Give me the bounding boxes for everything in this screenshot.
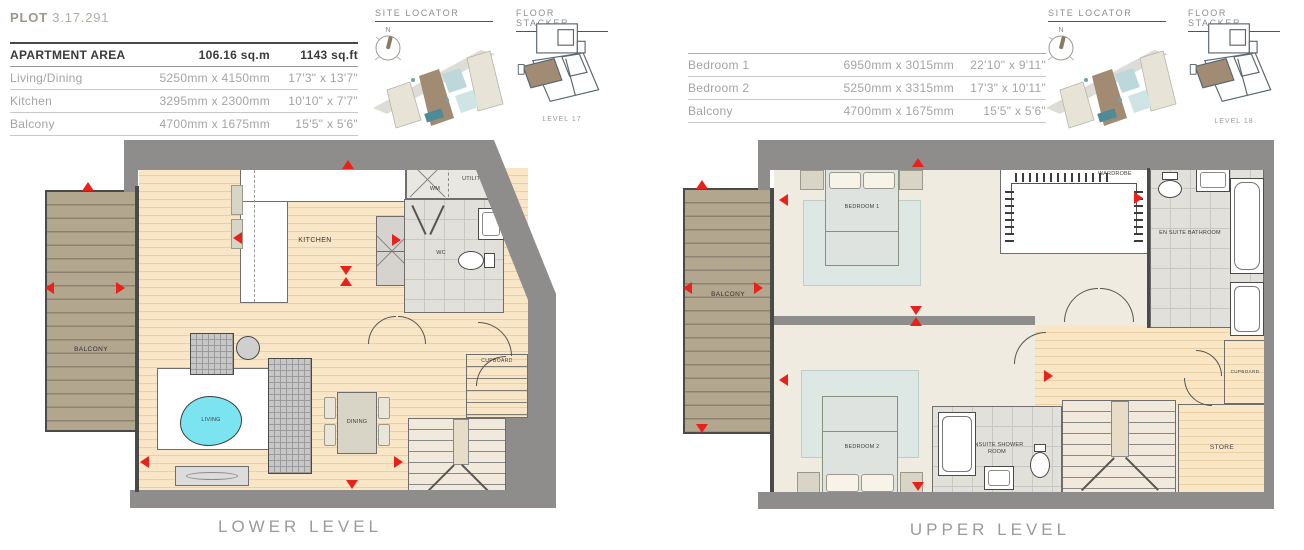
window-marker-icon bbox=[779, 374, 788, 386]
door-marker-icon bbox=[1044, 370, 1053, 382]
floor-stacker-diagram bbox=[1182, 20, 1277, 112]
plot-title: PLOT 3.17.291 bbox=[10, 10, 109, 25]
upper-stairs bbox=[1062, 400, 1176, 494]
window-wall bbox=[770, 188, 774, 492]
floorplan-page: PLOT 3.17.291 APARTMENT AREA 106.16 sq.m… bbox=[0, 0, 1304, 550]
window-marker-icon bbox=[910, 306, 922, 315]
wall bbox=[758, 492, 1274, 509]
counter-dashline bbox=[254, 170, 255, 302]
pillow-icon bbox=[826, 474, 859, 492]
room-name-cell: Kitchen bbox=[10, 90, 128, 113]
metric-cell: 3295mm x 2300mm bbox=[128, 90, 270, 113]
room-label: WM bbox=[425, 186, 445, 193]
tv-unit-icon bbox=[175, 466, 249, 486]
toilet-cistern bbox=[1034, 444, 1046, 452]
site-locator-map: N bbox=[363, 18, 508, 130]
chair-icon bbox=[324, 424, 336, 446]
partition-wall bbox=[1147, 168, 1150, 328]
wall bbox=[1264, 140, 1274, 508]
imperial-cell: 15'5" x 5'6" bbox=[270, 113, 358, 136]
chair-icon bbox=[378, 424, 390, 446]
room-label: DINING bbox=[337, 419, 377, 426]
header-name-cell: APARTMENT AREA bbox=[10, 43, 128, 67]
room-name-cell: Balcony bbox=[688, 100, 806, 123]
room-name-cell: Bedroom 1 bbox=[688, 54, 806, 77]
toilet-cistern bbox=[1162, 172, 1178, 180]
window-marker-icon bbox=[394, 456, 403, 468]
window-marker-icon bbox=[912, 158, 924, 167]
lower-plan-title: LOWER LEVEL bbox=[150, 517, 450, 537]
room-label: BEDROOM 1 bbox=[822, 204, 902, 211]
upper-balcony bbox=[683, 188, 773, 434]
wall bbox=[124, 140, 138, 192]
chair-icon bbox=[378, 397, 390, 419]
window-marker-icon bbox=[912, 482, 924, 491]
wall bbox=[528, 293, 556, 492]
room-label: WARDROBE bbox=[1098, 171, 1148, 178]
bathtub-icon bbox=[1230, 178, 1264, 274]
door-marker-icon bbox=[340, 277, 352, 286]
kitchen-appliance bbox=[231, 185, 243, 215]
svg-text:N: N bbox=[385, 27, 390, 34]
room-name-cell: Bedroom 2 bbox=[688, 77, 806, 100]
window-marker-icon bbox=[82, 182, 94, 191]
imperial-cell: 22'10" x 9'11" bbox=[954, 54, 1046, 77]
window-marker-icon bbox=[45, 282, 54, 294]
pillow-icon bbox=[861, 474, 894, 492]
room-name-cell: Living/Dining bbox=[10, 67, 128, 90]
wall bbox=[773, 316, 1035, 325]
apartment-area-table: APARTMENT AREA 106.16 sq.m 1143 sq.ft Li… bbox=[10, 42, 358, 136]
window-marker-icon bbox=[346, 480, 358, 489]
plot-number: 3.17.291 bbox=[52, 10, 109, 25]
wall bbox=[758, 140, 770, 190]
plot-label: PLOT bbox=[10, 10, 48, 25]
wall bbox=[758, 140, 1272, 170]
shower-icon bbox=[938, 412, 976, 476]
chair-icon bbox=[324, 397, 336, 419]
window-marker-icon bbox=[754, 282, 763, 294]
sofa-icon bbox=[190, 333, 234, 375]
window-marker-icon bbox=[116, 282, 125, 294]
compass-icon: N bbox=[375, 27, 401, 60]
header-metric-cell: 106.16 sq.m bbox=[128, 43, 270, 67]
sofa-icon bbox=[268, 358, 312, 474]
wall bbox=[506, 418, 528, 492]
wardrobe-room bbox=[1000, 168, 1148, 254]
imperial-cell: 15'5" x 5'6" bbox=[954, 100, 1046, 123]
table-row: Balcony 4700mm x 1675mm 15'5" x 5'6" bbox=[688, 100, 1046, 123]
toilet-icon bbox=[1030, 452, 1050, 478]
svg-text:N: N bbox=[1058, 27, 1063, 34]
pillow-icon bbox=[863, 172, 895, 189]
table-row: Bedroom 2 5250mm x 3315mm 17'3" x 10'11" bbox=[688, 77, 1046, 100]
lower-balcony bbox=[45, 190, 137, 432]
compass-icon: N bbox=[1048, 27, 1074, 60]
bedside-table-icon bbox=[800, 170, 824, 190]
metric-cell: 4700mm x 1675mm bbox=[806, 100, 954, 123]
metric-cell: 5250mm x 3315mm bbox=[806, 77, 954, 100]
side-table-icon bbox=[236, 336, 260, 360]
table-row: Balcony 4700mm x 1675mm 15'5" x 5'6" bbox=[10, 113, 358, 136]
room-label: BALCONY bbox=[49, 346, 133, 354]
toilet-icon bbox=[1158, 180, 1182, 198]
shower-icon bbox=[1230, 282, 1264, 336]
imperial-cell: 17'3" x 13'7" bbox=[270, 67, 358, 90]
hangers-icon bbox=[1005, 191, 1014, 243]
wall bbox=[130, 490, 556, 508]
window-marker-icon bbox=[342, 160, 354, 169]
room-label: EN SUITE BATHROOM bbox=[1154, 230, 1226, 237]
lower-stairs bbox=[408, 418, 506, 492]
window-marker-icon bbox=[683, 282, 692, 294]
bedroom-area-table: Bedroom 1 6950mm x 3015mm 22'10" x 9'11"… bbox=[688, 53, 1046, 123]
bedside-table-icon bbox=[899, 170, 923, 190]
sink-icon bbox=[984, 466, 1014, 490]
window-marker-icon bbox=[779, 194, 788, 206]
bedside-table-icon bbox=[797, 472, 820, 494]
window-marker-icon bbox=[696, 424, 708, 433]
site-locator-map: N bbox=[1036, 18, 1181, 130]
metric-cell: 4700mm x 1675mm bbox=[128, 113, 270, 136]
window-wall bbox=[135, 186, 139, 492]
room-label: BEDROOM 2 bbox=[822, 444, 902, 451]
room-name-cell: Balcony bbox=[10, 113, 128, 136]
room-label: LIVING bbox=[183, 417, 239, 424]
door-marker-icon bbox=[1134, 192, 1143, 204]
table-row: Bedroom 1 6950mm x 3015mm 22'10" x 9'11" bbox=[688, 54, 1046, 77]
table-header-row: APARTMENT AREA 106.16 sq.m 1143 sq.ft bbox=[10, 43, 358, 67]
sink-icon bbox=[1196, 168, 1230, 192]
window-marker-icon bbox=[910, 317, 922, 326]
toilet-icon bbox=[458, 251, 484, 270]
room-label: CUPBOARD bbox=[1222, 369, 1268, 375]
window-marker-icon bbox=[696, 180, 708, 189]
pillow-icon bbox=[829, 172, 861, 189]
level-caption: LEVEL 18 bbox=[1188, 118, 1280, 125]
table-row: Kitchen 3295mm x 2300mm 10'10" x 7'7" bbox=[10, 90, 358, 113]
kitchen-counter bbox=[240, 169, 406, 202]
room-label: KITCHEN bbox=[280, 236, 350, 245]
room-label: WC bbox=[428, 250, 454, 257]
header-imperial-cell: 1143 sq.ft bbox=[270, 43, 358, 67]
metric-cell: 5250mm x 4150mm bbox=[128, 67, 270, 90]
door-marker-icon bbox=[392, 234, 401, 246]
kitchen-counter bbox=[240, 201, 288, 303]
imperial-cell: 10'10" x 7'7" bbox=[270, 90, 358, 113]
window-marker-icon bbox=[233, 232, 242, 244]
room-label: STORE bbox=[1178, 444, 1266, 452]
metric-cell: 6950mm x 3015mm bbox=[806, 54, 954, 77]
table-row: Living/Dining 5250mm x 4150mm 17'3" x 13… bbox=[10, 67, 358, 90]
upper-plan-title: UPPER LEVEL bbox=[840, 520, 1140, 540]
floor-stacker-diagram bbox=[510, 20, 605, 112]
level-caption: LEVEL 17 bbox=[516, 116, 608, 123]
window-marker-icon bbox=[140, 456, 149, 468]
door-marker-icon bbox=[340, 266, 352, 275]
toilet-cistern bbox=[484, 253, 495, 268]
imperial-cell: 17'3" x 10'11" bbox=[954, 77, 1046, 100]
